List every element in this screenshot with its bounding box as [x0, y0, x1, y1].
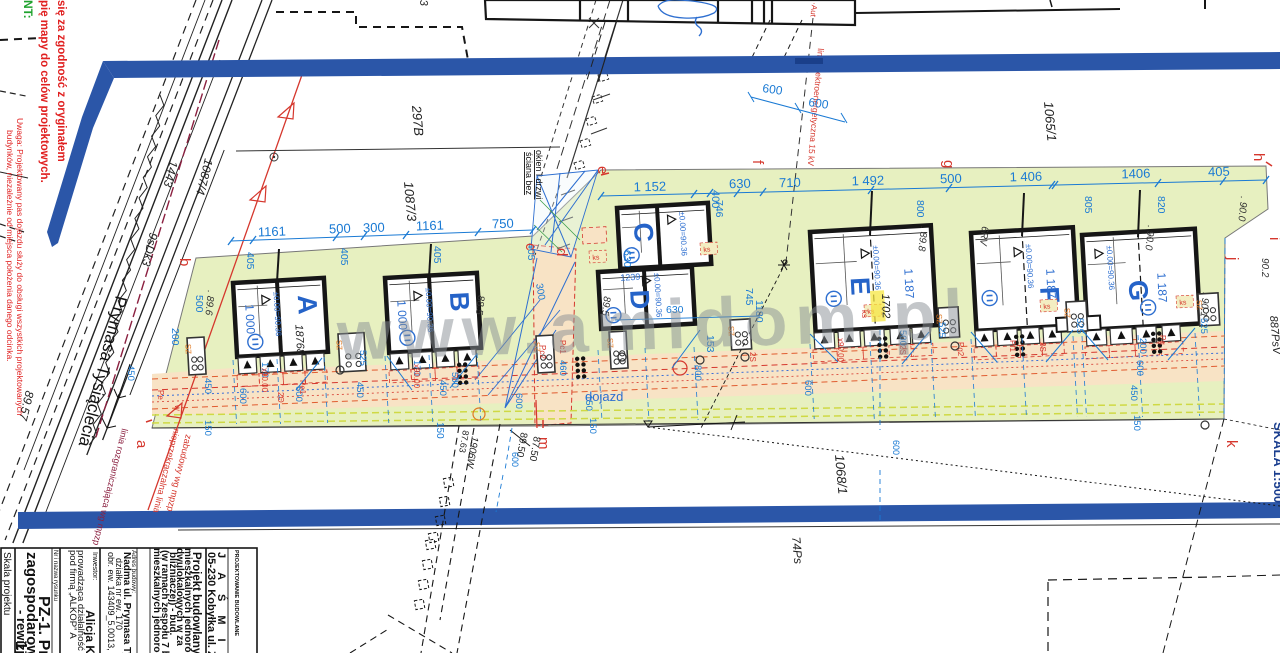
svg-text:h: h [1250, 153, 1267, 161]
svg-text:150: 150 [1131, 415, 1142, 431]
svg-text:600: 600 [513, 393, 524, 409]
svg-text:2Θ: 2Θ [276, 392, 285, 403]
svg-text:JAŚMIŃ: JAŚMIŃ [215, 552, 228, 653]
svg-text:500: 500 [940, 171, 962, 187]
svg-text:ks: ks [1179, 299, 1187, 306]
svg-text:Adres budowy:: Adres budowy: [130, 550, 137, 593]
svg-text:budynków, niezależnie od miejs: budynków, niezależnie od miejsca położen… [5, 130, 15, 362]
svg-text:a: a [133, 440, 150, 449]
svg-text:405: 405 [431, 246, 443, 264]
svg-text:ściana bez: ściana bez [524, 152, 534, 196]
svg-text:150: 150 [434, 422, 445, 439]
svg-text:600: 600 [762, 81, 784, 98]
svg-text:SZ: SZ [183, 344, 193, 355]
svg-text:710: 710 [779, 175, 801, 191]
svg-text:Nr i nazwa rysunku: Nr i nazwa rysunku [52, 550, 58, 601]
svg-text:G: G [1123, 279, 1154, 302]
svg-text:600: 600 [891, 440, 901, 455]
svg-text:Projekt budowlany 2 b: Projekt budowlany 2 b [190, 552, 202, 653]
svg-text:405: 405 [244, 252, 256, 270]
svg-text:800: 800 [692, 365, 703, 381]
svg-text:1239: 1239 [620, 272, 641, 283]
svg-text:800: 800 [914, 200, 926, 218]
svg-text:ks: ks [703, 246, 711, 253]
svg-text:500: 500 [329, 221, 351, 237]
svg-text:200: 200 [1137, 338, 1148, 354]
svg-text:A: A [292, 294, 323, 315]
svg-text:805: 805 [1082, 196, 1094, 214]
svg-text:6RV: 6RV [977, 226, 990, 248]
svg-text:1406: 1406 [1121, 166, 1150, 182]
svg-text:600: 600 [808, 95, 830, 112]
svg-text:1 152: 1 152 [633, 179, 666, 195]
svg-text:ks: ks [1043, 303, 1051, 310]
svg-text:820: 820 [1155, 196, 1167, 214]
svg-text:450: 450 [437, 380, 448, 396]
svg-text:PROJEKTOWANIE BUDOWLANE: PROJEKTOWANIE BUDOWLANE [233, 550, 239, 636]
svg-text:150: 150 [583, 395, 594, 411]
svg-text:90.2: 90.2 [1259, 258, 1270, 278]
svg-text:g: g [940, 160, 957, 168]
svg-text:pię mapy do celów projektowych: pię mapy do celów projektowych. [38, 0, 50, 183]
svg-text:Pe: Pe [156, 390, 165, 400]
svg-text:j: j [1224, 256, 1241, 260]
svg-text:SKALA 1:500: SKALA 1:500 [1271, 422, 1280, 503]
svg-text:150: 150 [202, 420, 213, 436]
svg-text:Uwaga: Projektowany pas dojazd: Uwaga: Projektowany pas dojazdu służy do… [15, 118, 25, 416]
svg-text:630: 630 [621, 250, 633, 268]
svg-text:500: 500 [449, 372, 460, 388]
svg-text:Pg: Pg [1158, 335, 1167, 345]
svg-text:1 000: 1 000 [242, 304, 258, 335]
svg-text:150: 150 [587, 418, 598, 434]
svg-text:okien i drzwi: okien i drzwi [534, 150, 544, 200]
svg-text:2S: 2S [1038, 342, 1047, 352]
svg-text:450: 450 [354, 382, 365, 398]
svg-text:·Aut: ·Aut [808, 2, 819, 18]
svg-text:się za zgodność z oryginałem: się za zgodność z oryginałem [55, 0, 67, 162]
svg-text:750: 750 [492, 216, 514, 232]
svg-text:b: b [176, 258, 193, 266]
svg-text:d: d [553, 248, 570, 256]
svg-text:600: 600 [510, 452, 520, 467]
svg-text:600: 600 [237, 388, 248, 404]
svg-text:ks: ks [592, 254, 600, 261]
svg-text:1 406: 1 406 [1009, 169, 1042, 185]
svg-text:1 187: 1 187 [1154, 272, 1170, 303]
svg-text:300: 300 [363, 220, 385, 236]
svg-text:SZ: SZ [1062, 308, 1072, 319]
svg-text:200: 200 [169, 328, 181, 346]
svg-text:1161: 1161 [258, 224, 286, 240]
svg-text:450: 450 [202, 378, 213, 394]
svg-text:746: 746 [713, 200, 725, 218]
svg-text:18768: 18768 [292, 324, 306, 356]
svg-text:w: w [173, 404, 182, 411]
svg-text:i: i [1266, 237, 1280, 240]
svg-text:NT:: NT: [21, 0, 35, 19]
svg-text:525: 525 [1198, 318, 1209, 334]
svg-text:297B: 297B [409, 104, 427, 137]
svg-text:Skala projektu: Skala projektu [1, 552, 12, 615]
svg-text:c: c [522, 243, 539, 251]
svg-text:405: 405 [1208, 164, 1230, 180]
svg-text:630: 630 [729, 176, 751, 192]
svg-text:PZ-1. Pro: PZ-1. Pro [35, 596, 52, 653]
svg-text:1 187: 1 187 [1043, 268, 1059, 299]
svg-text:600: 600 [1134, 360, 1145, 376]
svg-text:Alicja Kępa: Alicja Kępa [83, 610, 97, 653]
svg-text:C: C [628, 222, 659, 243]
svg-text:450: 450 [1128, 385, 1139, 401]
svg-text:74Ps: 74Ps [789, 536, 805, 564]
svg-text:Pf1: Pf1 [1008, 340, 1017, 353]
svg-text:600: 600 [802, 380, 813, 396]
svg-text:Inwestor:: Inwestor: [91, 552, 98, 580]
svg-text:405: 405 [338, 248, 350, 266]
svg-text:x90.00: x90.00 [260, 368, 269, 393]
svg-text:k: k [1223, 440, 1240, 448]
svg-text:1 492: 1 492 [851, 173, 884, 189]
